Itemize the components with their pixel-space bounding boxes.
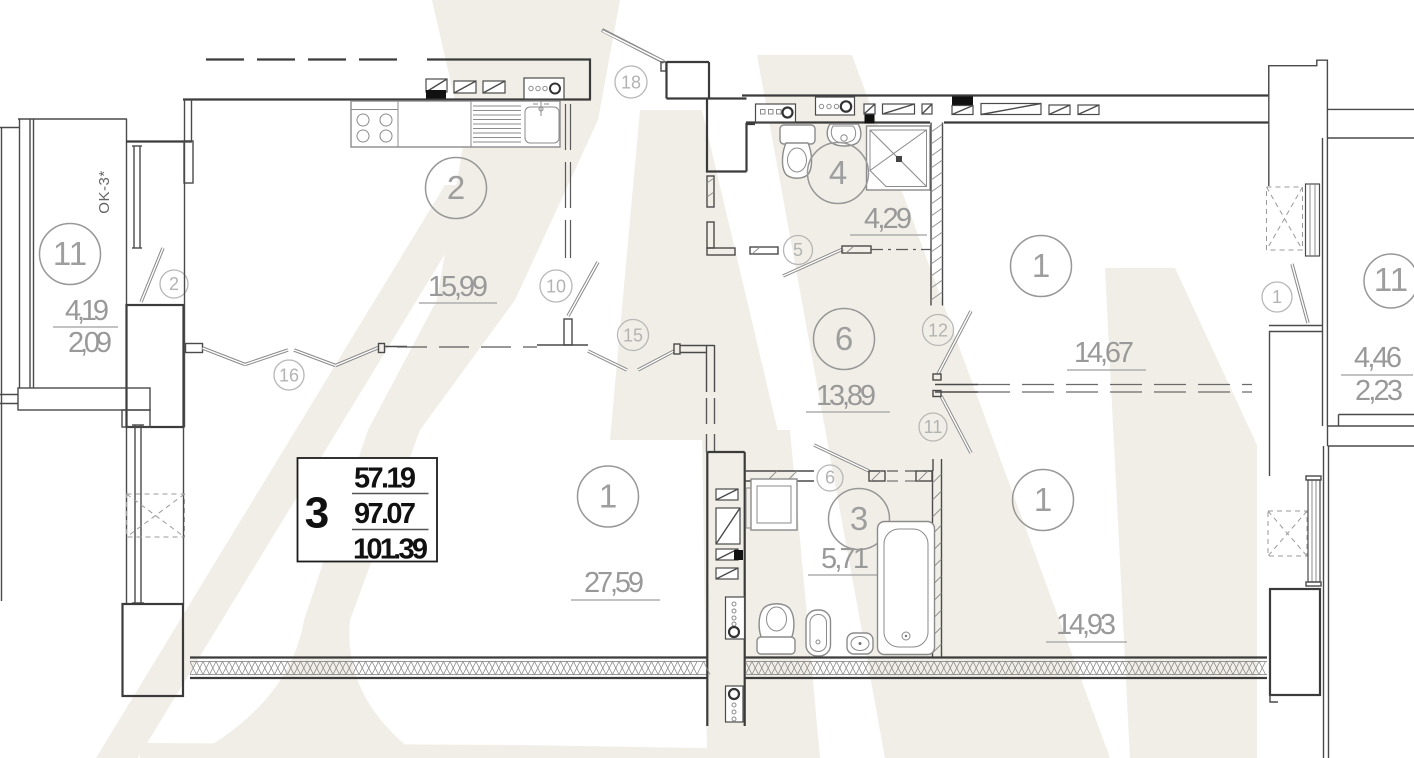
svg-text:10: 10 [546,277,566,297]
svg-text:11: 11 [1374,261,1408,298]
svg-text:4,29: 4,29 [864,203,912,235]
svg-text:5,71: 5,71 [821,543,869,575]
svg-text:15,99: 15,99 [428,271,488,303]
svg-text:13,89: 13,89 [816,380,876,412]
svg-text:1: 1 [1034,481,1052,518]
svg-text:16: 16 [279,366,299,386]
svg-text:5: 5 [793,240,803,260]
svg-text:14,67: 14,67 [1074,337,1134,369]
svg-text:4,46: 4,46 [1354,342,1402,374]
svg-text:6: 6 [825,468,835,488]
svg-text:97.07: 97.07 [354,498,416,530]
svg-text:15: 15 [623,326,643,346]
svg-text:1: 1 [1272,287,1282,307]
svg-text:3: 3 [305,489,329,538]
svg-text:2,23: 2,23 [1355,375,1403,407]
svg-text:4,19: 4,19 [65,295,109,327]
svg-text:6: 6 [835,320,853,357]
svg-text:2: 2 [447,169,465,206]
svg-text:2,09: 2,09 [68,327,112,359]
svg-text:18: 18 [621,73,641,93]
svg-text:11: 11 [53,235,87,272]
svg-text:27,59: 27,59 [584,567,644,599]
svg-text:12: 12 [928,321,948,341]
svg-text:3: 3 [850,500,868,537]
svg-text:4: 4 [829,154,847,191]
svg-text:2: 2 [169,274,179,294]
svg-text:14,93: 14,93 [1056,609,1116,641]
svg-text:1: 1 [599,478,617,515]
svg-text:11: 11 [924,417,943,437]
svg-text:101.39: 101.39 [353,534,428,566]
svg-text:57.19: 57.19 [354,463,416,495]
svg-text:1: 1 [1032,247,1050,284]
svg-text:OK-3*: OK-3* [96,170,113,213]
